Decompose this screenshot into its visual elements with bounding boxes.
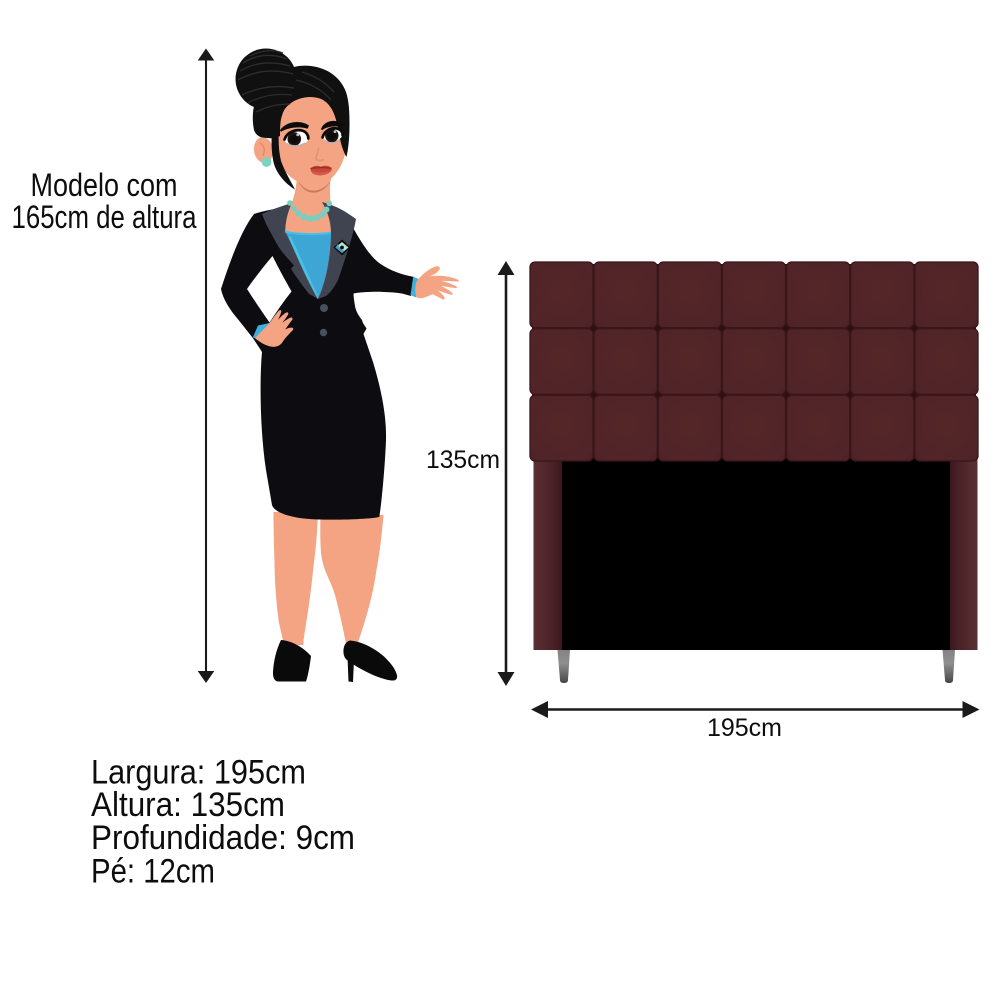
svg-text:Modelo com: Modelo com [31, 167, 178, 203]
svg-text:195cm: 195cm [707, 714, 782, 742]
svg-text:135cm: 135cm [426, 446, 500, 474]
svg-text:165cm de altura: 165cm de altura [12, 199, 197, 235]
svg-text:Profundidade: 9cm: Profundidade: 9cm [91, 819, 355, 857]
svg-text:Pé: 12cm: Pé: 12cm [91, 853, 215, 891]
